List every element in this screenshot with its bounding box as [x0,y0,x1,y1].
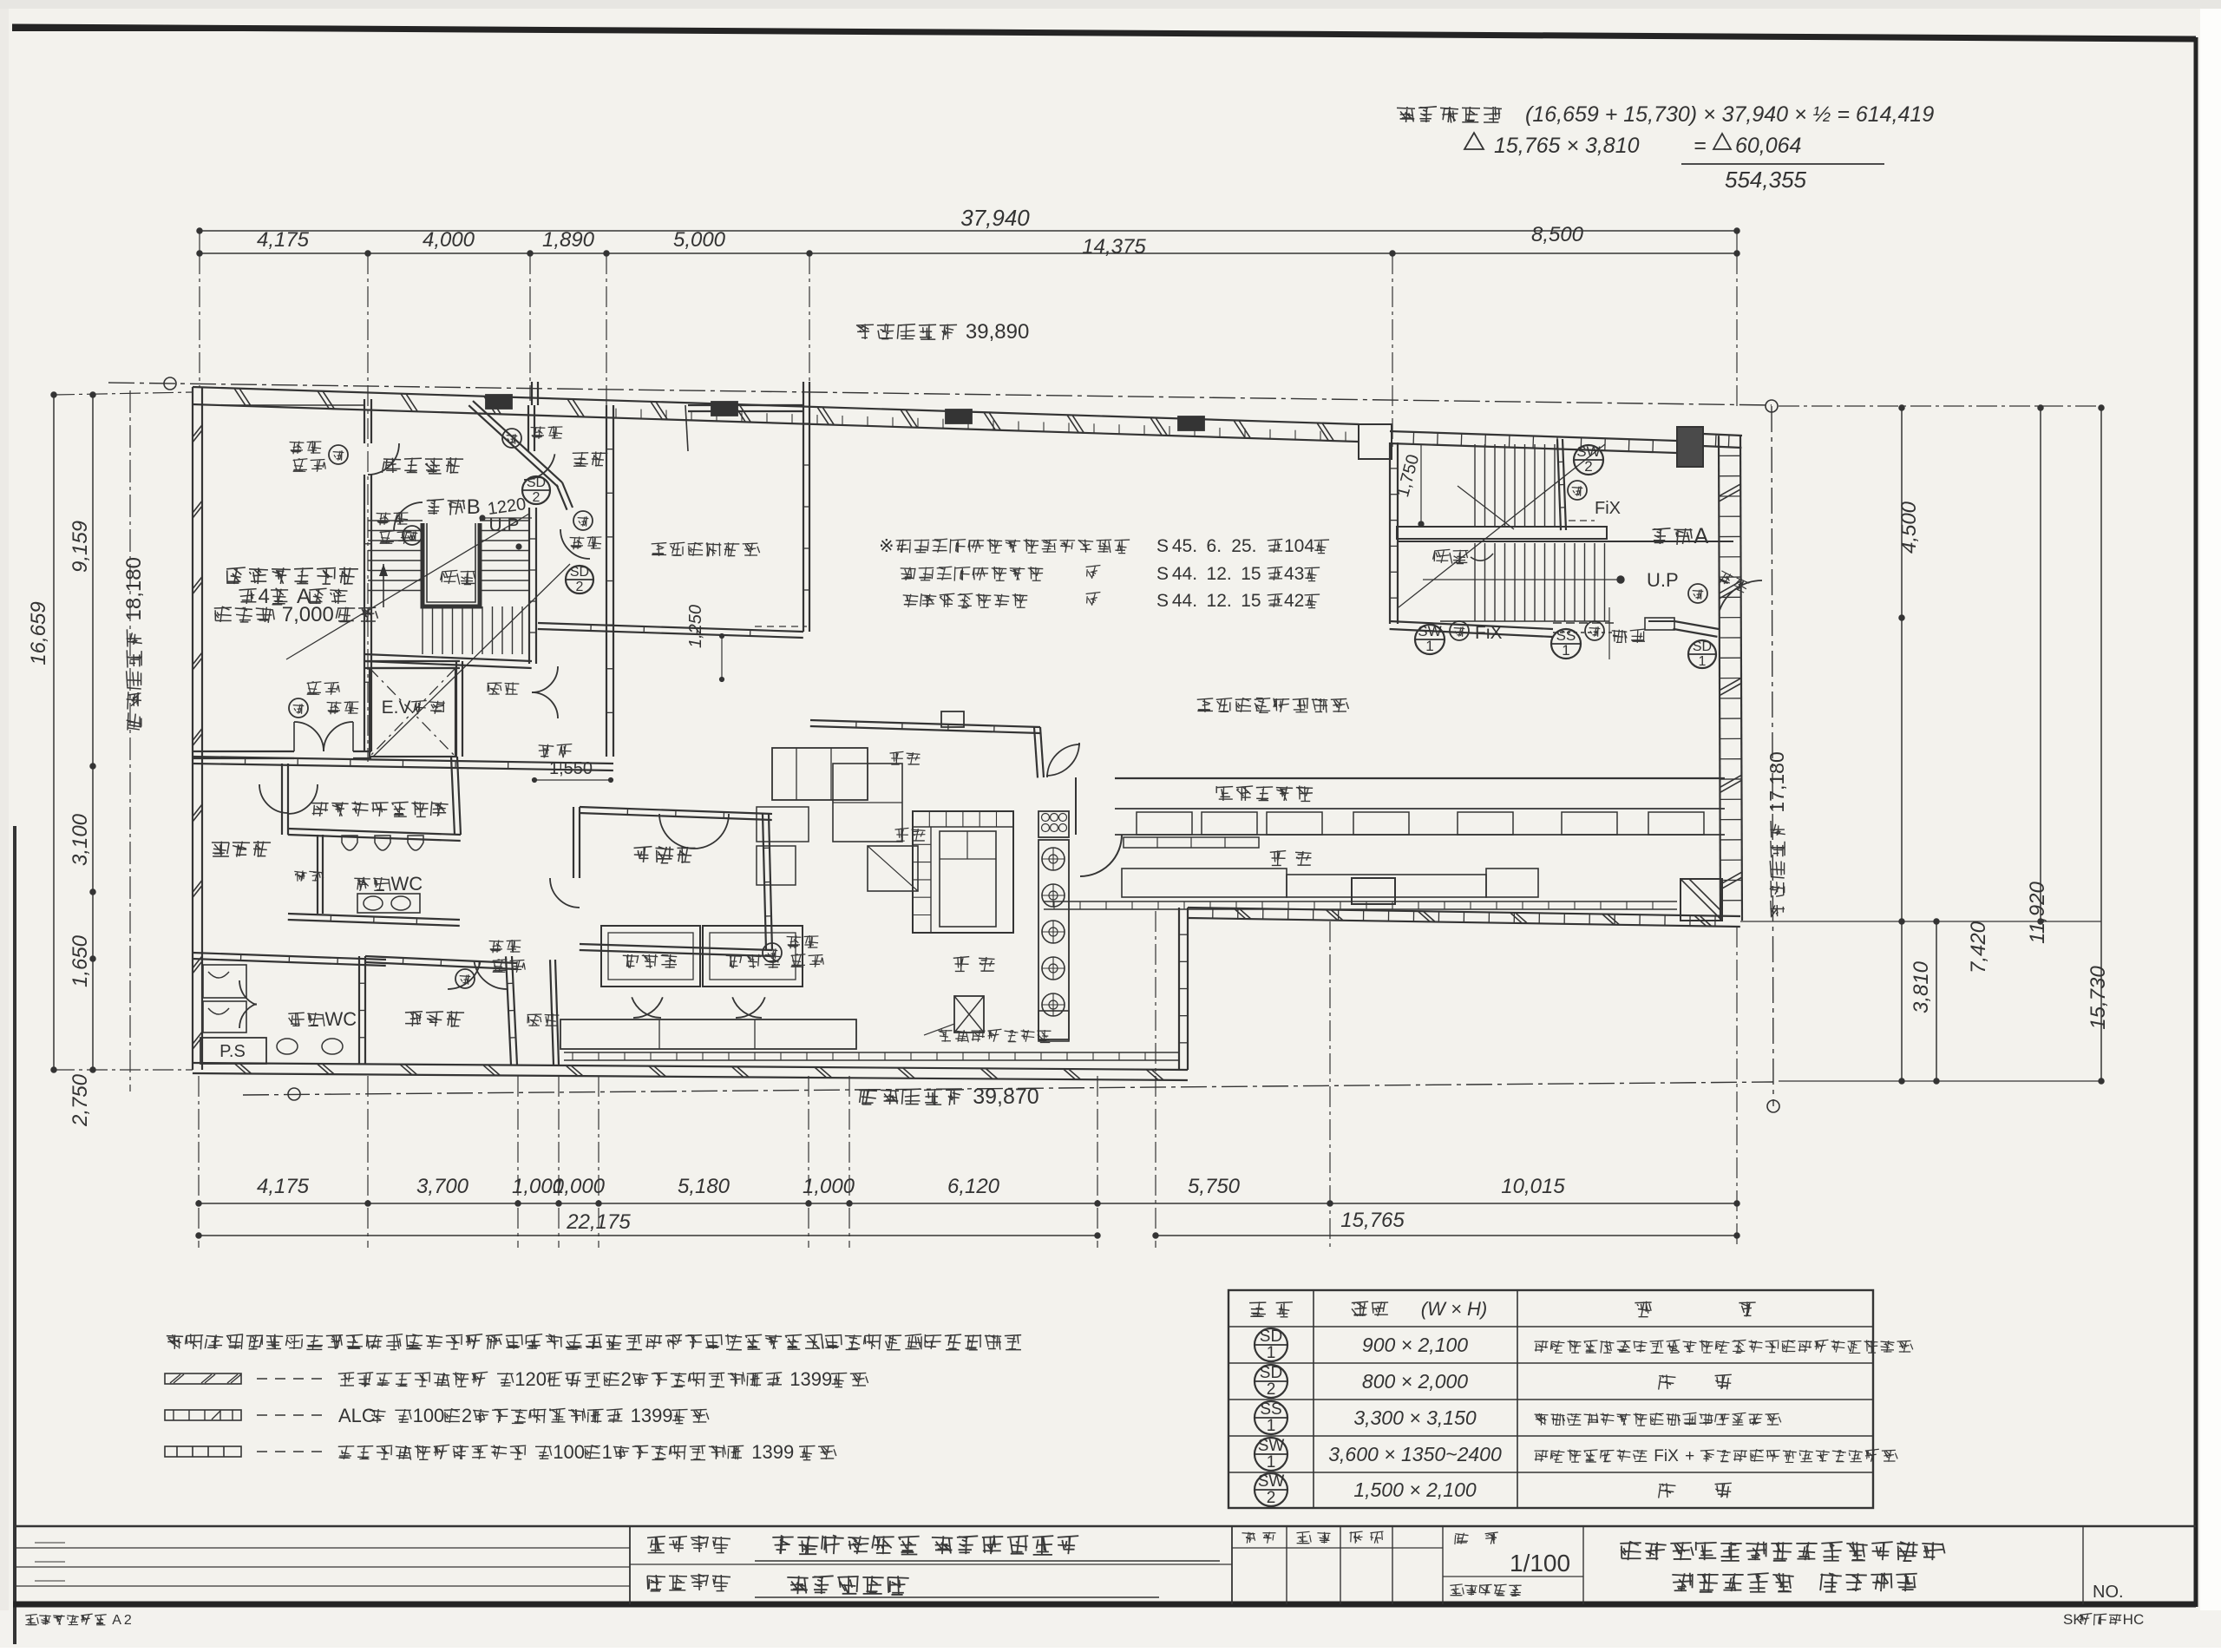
svg-text:1,250: 1,250 [686,605,705,648]
svg-text:U.P: U.P [1647,569,1679,591]
svg-text:1: 1 [1425,638,1433,654]
svg-text:1: 1 [1267,1344,1276,1362]
svg-text:SD: SD [570,565,589,580]
svg-text:800 × 2,000: 800 × 2,000 [1362,1370,1468,1393]
svg-text:6,120: 6,120 [947,1175,1000,1198]
svg-text:11,920: 11,920 [2026,882,2049,944]
svg-text:ALC: ALC [338,1405,376,1426]
svg-text:(16,659 + 15,730) × 37,940 × ½: (16,659 + 15,730) × 37,940 × ½ = 614,419 [1525,102,1934,127]
svg-text:S: S [1156,564,1169,584]
svg-text:1399: 1399 [631,1405,673,1426]
svg-text:=: = [1694,134,1707,158]
svg-text:5,180: 5,180 [678,1175,731,1198]
svg-text:SD: SD [1260,1364,1282,1382]
svg-text:1399: 1399 [751,1441,794,1463]
svg-text:3,100: 3,100 [69,813,92,866]
svg-text:1,500 × 2,100: 1,500 × 2,100 [1353,1478,1477,1501]
svg-text:B: B [467,495,481,519]
svg-text:7,000: 7,000 [282,603,334,626]
svg-text:A: A [112,1613,121,1628]
svg-text:FiX: FiX [1475,623,1503,643]
svg-text:FiX: FiX [1654,1447,1679,1465]
svg-text:39,890: 39,890 [966,320,1029,344]
svg-text:17,180: 17,180 [1766,751,1788,812]
svg-text:1,000: 1,000 [553,1175,606,1198]
svg-text:E.V: E.V [382,698,411,718]
svg-text:6.: 6. [1207,536,1222,556]
svg-text:SD: SD [1260,1327,1282,1346]
svg-text:1: 1 [1699,654,1707,669]
svg-text:2: 2 [462,1405,472,1426]
svg-text:1/100: 1/100 [1510,1550,1570,1577]
svg-text:1,550: 1,550 [549,759,593,778]
svg-text:+: + [1685,1447,1694,1465]
svg-text:8,500: 8,500 [1531,223,1584,246]
svg-text:2: 2 [621,1368,632,1390]
svg-text:5,000: 5,000 [673,228,726,252]
svg-text:1: 1 [1267,1453,1276,1472]
svg-text:37,940: 37,940 [960,205,1030,231]
svg-text:2: 2 [533,490,541,505]
svg-text:14,375: 14,375 [1082,235,1146,259]
svg-text:4,000: 4,000 [423,228,475,252]
svg-text:2: 2 [576,580,584,594]
svg-text:A: A [1694,524,1709,548]
svg-text:7,420: 7,420 [1967,921,1990,973]
svg-text:S: S [1156,536,1169,556]
svg-text:3,300 × 3,150: 3,300 × 3,150 [1353,1406,1477,1429]
svg-text:FiX: FiX [1595,499,1621,518]
svg-text:1,890: 1,890 [542,228,595,252]
svg-text:SD: SD [1693,639,1712,654]
svg-text:P.S: P.S [219,1042,246,1061]
svg-text:15: 15 [1241,591,1261,611]
svg-text:※: ※ [879,536,894,556]
svg-text:18,180: 18,180 [122,557,146,620]
svg-text:2,750: 2,750 [69,1073,92,1127]
svg-text:15,765 × 3,810: 15,765 × 3,810 [1494,134,1640,158]
svg-text:NO.: NO. [2093,1583,2124,1602]
svg-text:SD: SD [527,475,546,490]
svg-text:15: 15 [1241,564,1261,584]
svg-text:16,659: 16,659 [27,601,50,665]
svg-text:SW: SW [1258,1437,1285,1455]
svg-text:2: 2 [1267,1380,1276,1399]
svg-text:104: 104 [1284,536,1314,556]
svg-text:43: 43 [1284,564,1304,584]
svg-text:1: 1 [1267,1417,1276,1435]
svg-text:900 × 2,100: 900 × 2,100 [1362,1334,1468,1356]
svg-text:U.P: U.P [488,515,519,535]
svg-text:10,015: 10,015 [1501,1175,1565,1198]
svg-text:4,175: 4,175 [257,1175,310,1198]
svg-text:3,700: 3,700 [416,1175,469,1198]
svg-text:1: 1 [602,1441,613,1463]
svg-text:4,500: 4,500 [1897,501,1921,554]
svg-text:4: 4 [259,585,270,608]
svg-text:100: 100 [413,1405,445,1426]
svg-text:2: 2 [1267,1489,1276,1507]
svg-text:12.: 12. [1207,591,1232,611]
svg-text:15,730: 15,730 [2087,966,2110,1030]
svg-text:1: 1 [1562,642,1569,659]
svg-text:SW: SW [1258,1472,1285,1491]
svg-text:5,750: 5,750 [1188,1175,1241,1198]
svg-text:1399: 1399 [789,1368,832,1390]
svg-text:S: S [1156,591,1169,611]
svg-text:100: 100 [553,1441,585,1463]
svg-text:3,810: 3,810 [1910,960,1933,1013]
svg-text:42: 42 [1284,591,1304,611]
svg-text:39,870: 39,870 [973,1085,1038,1109]
svg-text:1,000: 1,000 [803,1175,855,1198]
svg-text:12.: 12. [1207,564,1232,584]
svg-text:3,600 × 1350~2400: 3,600 × 1350~2400 [1328,1443,1502,1465]
svg-text:44.: 44. [1172,564,1197,584]
svg-text:9,159: 9,159 [69,521,92,573]
svg-text:44.: 44. [1172,591,1197,611]
svg-text:WC: WC [325,1008,357,1030]
svg-text:1,650: 1,650 [69,934,92,987]
svg-text:SS: SS [1260,1400,1281,1419]
svg-text:4,175: 4,175 [257,228,310,252]
svg-text:2: 2 [124,1613,132,1628]
svg-text:WC: WC [391,873,423,895]
svg-text:60,064: 60,064 [1735,134,1801,158]
svg-text:120: 120 [514,1368,547,1390]
svg-text:HC: HC [2123,1611,2145,1628]
svg-text:15,765: 15,765 [1340,1209,1405,1232]
svg-text:2: 2 [1584,458,1592,475]
svg-text:554,355: 554,355 [1725,167,1807,193]
svg-text:25.: 25. [1231,536,1256,556]
svg-text:45.: 45. [1172,536,1197,556]
svg-text:(W × H): (W × H) [1421,1298,1487,1320]
